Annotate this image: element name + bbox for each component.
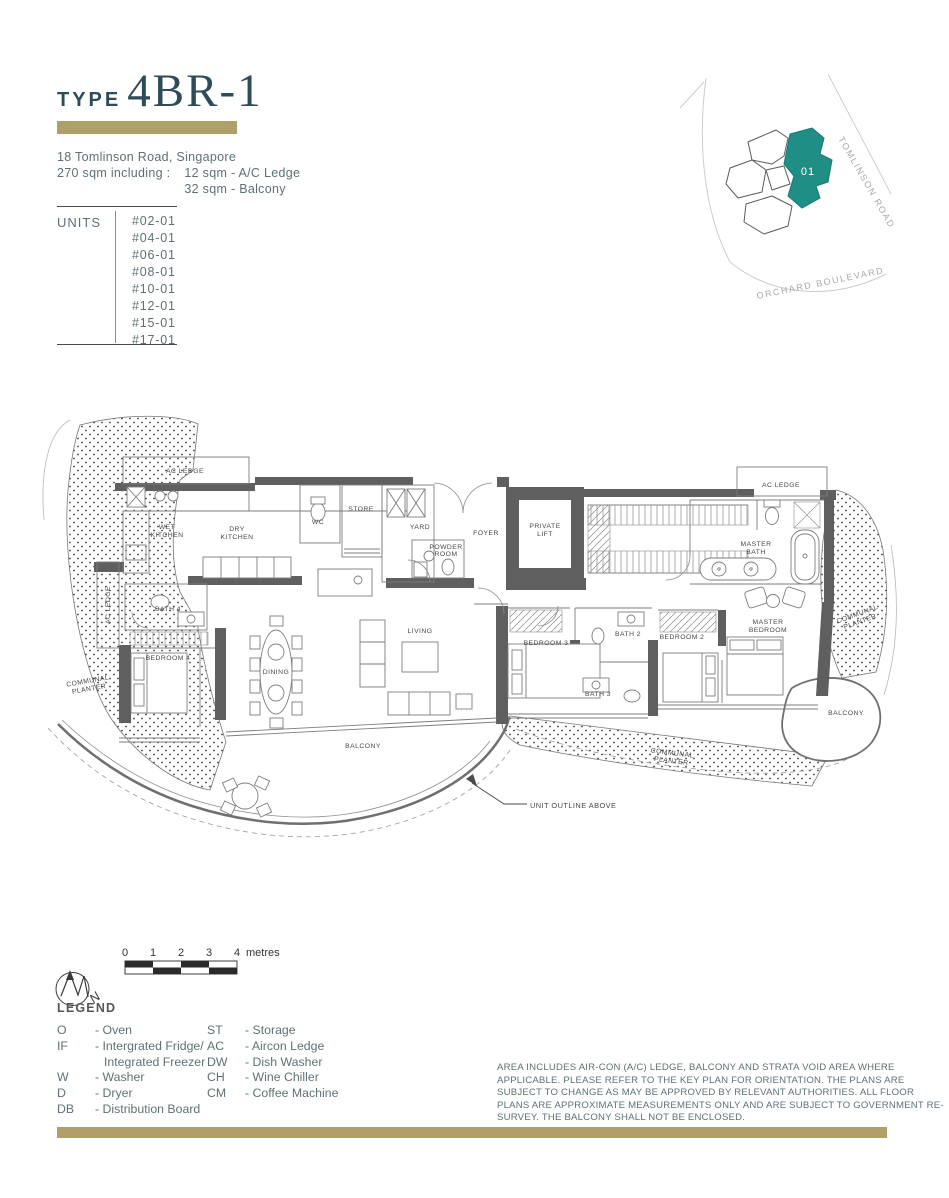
unit-number: #04-01 [132,230,176,247]
address-line: 18 Tomlinson Road, Singapore [57,149,300,165]
room-label-balcony-right: BALCONY [828,710,864,717]
legend-abbr: CH [207,1070,245,1086]
room-label-powder-room: POWDER [429,544,462,551]
scale-tick: 1 [150,947,156,959]
area-prefix: 270 sqm including : [57,165,170,197]
units-divider [115,211,116,343]
legend-abbr: IF [57,1039,95,1071]
room-label-bath-2: BATH 2 [615,631,641,638]
legend-column-1: O- Oven IF- Intergrated Fridge/Integrate… [57,1023,207,1118]
gold-accent-bar [57,121,237,134]
unit-number: #15-01 [132,315,176,332]
room-label-balcony-left: BALCONY [345,743,381,750]
units-label: UNITS [57,215,101,230]
scale-tick: 3 [206,947,212,959]
area-item-balcony: 32 sqm - Balcony [184,181,300,197]
units-rule-top [57,206,177,207]
room-label-private-lift: LIFT [537,531,553,538]
room-label-master-bath: MASTER [740,541,771,548]
room-label-powder-room: ROOM [435,551,458,558]
legend-term: - Oven [95,1023,132,1039]
legend-term: - Intergrated Fridge/Integrated Freezer [95,1039,205,1071]
room-label-master-bedroom: BEDROOM [749,627,787,634]
legend-abbr: AC [207,1039,245,1055]
type-label: TYPE [57,89,121,112]
legend-term: - Dryer [95,1086,133,1102]
legend-term: - Distribution Board [95,1102,200,1118]
legend-title: LEGEND [57,1001,338,1015]
unit-number: #10-01 [132,281,176,298]
legend-term: - Aircon Ledge [245,1039,324,1055]
scale-and-north: N 0 1 2 3 4 metres [40,938,320,1010]
legend-term-line1: - Intergrated Fridge/ [95,1039,204,1053]
room-label-living: LIVING [408,628,433,635]
room-label-master-bath: BATH [746,549,765,556]
room-label-bedroom-4: BEDROOM 4 [146,655,191,662]
room-label-master-bedroom: MASTER [752,619,783,626]
room-label-ac-ledge-left: AC LEDGE [105,586,112,624]
room-label-bedroom-2: BEDROOM 2 [660,634,705,641]
road-label-tomlinson: TOMLINSON ROAD [836,135,897,230]
legend-abbr: DB [57,1102,95,1118]
room-label-private-lift: PRIVATE [529,523,560,530]
unit-number: #08-01 [132,264,176,281]
building-footprint [726,130,792,234]
room-label-bath-4: BATH 4 [155,606,181,613]
scale-tick: 0 [122,947,128,959]
legend-term: - Coffee Machine [245,1086,338,1102]
unit-outline-leader [466,774,527,804]
legend-abbr: W [57,1070,95,1086]
room-label-dining: DINING [263,669,290,676]
legend-column-2: ST- Storage AC- Aircon Ledge DW- Dish Wa… [207,1023,338,1118]
address-block: 18 Tomlinson Road, Singapore 270 sqm inc… [57,149,300,197]
legend-term: - Washer [95,1070,144,1086]
room-label-ac-ledge-top: AC LEDGE [166,468,204,475]
room-label-yard: YARD [410,524,430,531]
unit-number: #06-01 [132,247,176,264]
room-label-dry-kitchen: KITCHEN [221,534,254,541]
room-label-foyer: FOYER [473,530,499,537]
legend-term: - Wine Chiller [245,1070,319,1086]
room-label-bath-3: BATH 3 [585,691,611,698]
disclaimer-text: AREA INCLUDES AIR-CON (A/C) LEDGE, BALCO… [497,1062,944,1125]
unit-number: #17-01 [132,332,176,349]
scale-bar: 0 1 2 3 4 metres [122,947,280,974]
room-label-wc: WC [312,519,324,526]
legend-term-line2: Integrated Freezer [95,1055,205,1071]
page-title: TYPE 4BR-1 [57,68,263,115]
legend-abbr: O [57,1023,95,1039]
legend-abbr: CM [207,1086,245,1102]
unit-type-value: 4BR-1 [127,68,262,115]
legend-abbr: DW [207,1055,245,1071]
room-label-dry-kitchen: DRY [229,526,245,533]
unit-outline-label: UNIT OUTLINE ABOVE [530,801,616,810]
legend-term: - Storage [245,1023,296,1039]
room-label-wet-kitchen: KITCHEN [151,532,184,539]
legend-abbr: ST [207,1023,245,1039]
key-plan: 01 TOMLINSON ROAD ORCHARD BOULEVARD [678,72,942,314]
room-label-store: STORE [348,506,374,513]
floor-plan-brochure-page: TYPE 4BR-1 18 Tomlinson Road, Singapore … [0,0,949,1198]
room-label-wet-kitchen: WET [159,524,175,531]
units-rule-bottom [57,344,177,345]
floor-plan-drawing: AC LEDGE WET KITCHEN DRY KITCHEN WC STOR… [0,400,949,880]
area-item-ac-ledge: 12 sqm - A/C Ledge [184,165,300,181]
gold-footer-bar [57,1127,887,1138]
units-list: #02-01 #04-01 #06-01 #08-01 #10-01 #12-0… [132,213,176,349]
balcony-right-area [782,678,880,761]
legend-term: - Dish Washer [245,1055,322,1071]
room-label-bedroom-3: BEDROOM 3 [524,640,569,647]
unit-number: #02-01 [132,213,176,230]
scale-tick: 4 [234,947,240,959]
legend-abbr: D [57,1086,95,1102]
legend: LEGEND O- Oven IF- Intergrated Fridge/In… [57,1001,338,1118]
scale-unit: metres [246,947,280,959]
room-label-ac-ledge-right: AC LEDGE [762,482,800,489]
unit-number-label: 01 [801,166,815,178]
scale-tick: 2 [178,947,184,959]
unit-number: #12-01 [132,298,176,315]
